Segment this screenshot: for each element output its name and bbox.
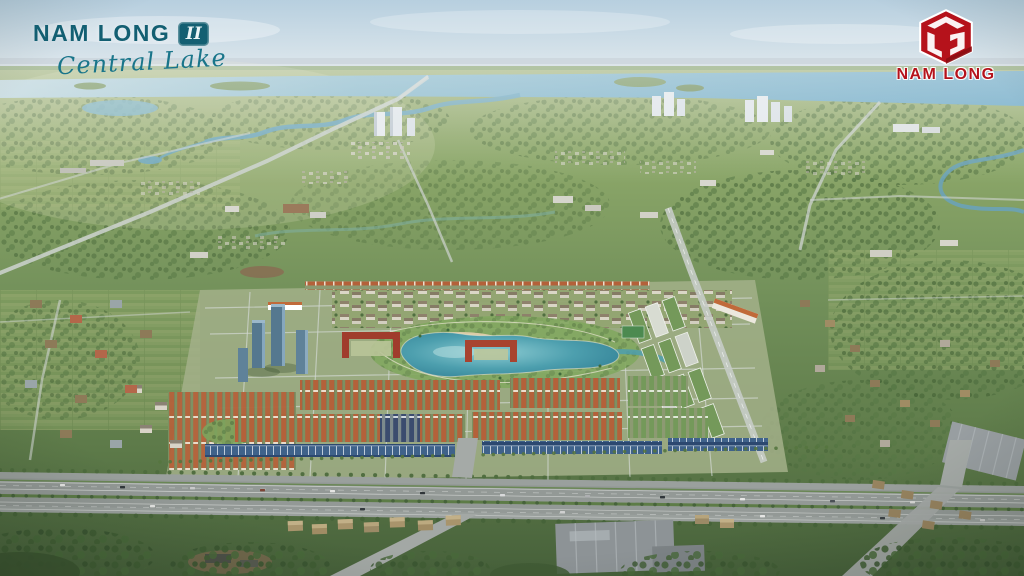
project-logo: NAM LONG II Central Lake [33, 20, 227, 76]
developer-logo-wordmark: NAM LONG [884, 66, 1008, 84]
project-tagline: Central Lake [56, 44, 227, 81]
project-logo-wordmark: NAM LONG [33, 20, 170, 47]
developer-logo: NAM LONG [884, 9, 1008, 84]
atmosphere-haze [0, 0, 1024, 576]
phase-badge: II [178, 22, 209, 46]
nam-long-logo-mark [915, 9, 977, 65]
aerial-render-stage: NAM LONG II Central Lake NAM LONG [0, 0, 1024, 576]
aerial-masterplan-render [0, 0, 1024, 576]
